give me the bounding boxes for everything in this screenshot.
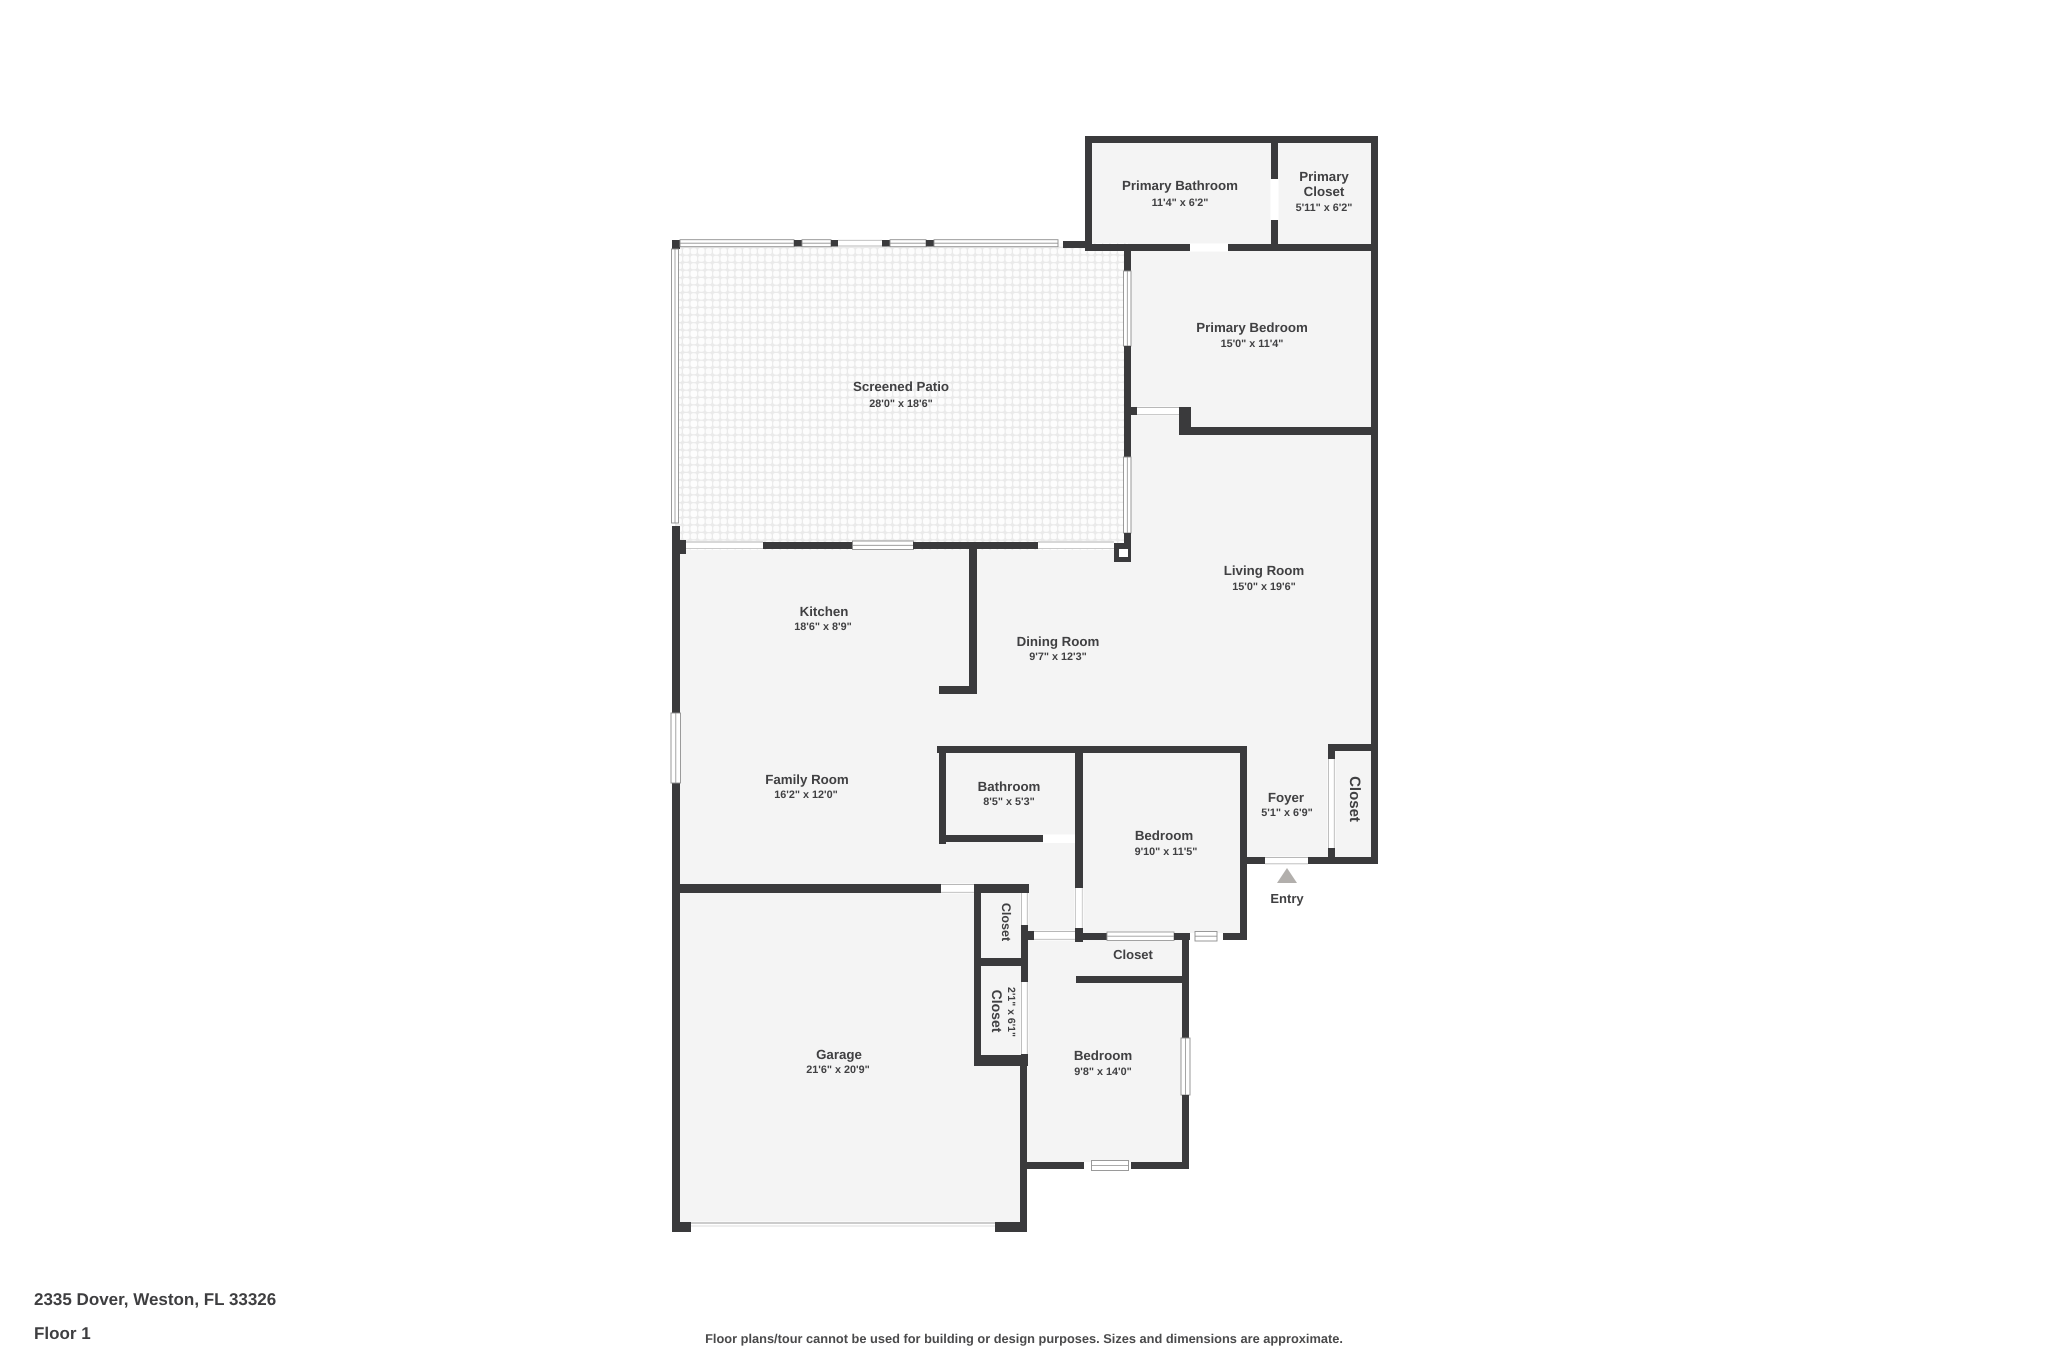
- svg-text:Floor 1: Floor 1: [34, 1324, 91, 1343]
- svg-text:Foyer: Foyer: [1268, 790, 1304, 805]
- svg-text:28'0" x 18'6": 28'0" x 18'6": [869, 398, 932, 410]
- svg-text:5'1" x 6'9": 5'1" x 6'9": [1261, 807, 1312, 819]
- svg-text:18'6" x 8'9": 18'6" x 8'9": [794, 621, 851, 633]
- svg-text:Primary: Primary: [1299, 169, 1349, 184]
- svg-text:Floor plans/tour cannot be use: Floor plans/tour cannot be used for buil…: [705, 1331, 1343, 1346]
- svg-text:Entry: Entry: [1270, 891, 1304, 906]
- svg-text:5'11" x 6'2": 5'11" x 6'2": [1296, 202, 1353, 214]
- svg-text:15'0" x 11'4": 15'0" x 11'4": [1221, 338, 1284, 350]
- svg-text:Closet: Closet: [999, 903, 1013, 942]
- svg-text:16'2" x 12'0": 16'2" x 12'0": [774, 789, 837, 801]
- svg-text:9'8" x 14'0": 9'8" x 14'0": [1074, 1066, 1131, 1078]
- svg-text:8'5" x 5'3": 8'5" x 5'3": [983, 796, 1034, 808]
- svg-text:Dining Room: Dining Room: [1017, 634, 1100, 649]
- svg-text:2'1" x 6'1": 2'1" x 6'1": [1005, 987, 1017, 1037]
- svg-text:Living Room: Living Room: [1224, 563, 1305, 578]
- svg-text:15'0" x 19'6": 15'0" x 19'6": [1232, 581, 1295, 593]
- svg-text:Kitchen: Kitchen: [800, 604, 849, 619]
- svg-text:Primary Bathroom: Primary Bathroom: [1122, 178, 1238, 193]
- svg-text:9'10" x 11'5": 9'10" x 11'5": [1135, 846, 1198, 858]
- svg-text:Garage: Garage: [816, 1047, 862, 1062]
- svg-text:Primary Bedroom: Primary Bedroom: [1196, 320, 1308, 335]
- svg-text:Screened Patio: Screened Patio: [853, 379, 949, 394]
- svg-text:Closet: Closet: [1304, 184, 1345, 199]
- svg-text:Bathroom: Bathroom: [978, 779, 1041, 794]
- svg-text:Family Room: Family Room: [765, 772, 849, 787]
- svg-text:Bedroom: Bedroom: [1135, 828, 1193, 843]
- svg-text:Closet: Closet: [989, 990, 1005, 1033]
- svg-text:Closet: Closet: [1113, 947, 1153, 962]
- svg-text:Closet: Closet: [1346, 776, 1363, 822]
- svg-text:21'6" x 20'9": 21'6" x 20'9": [806, 1064, 869, 1076]
- svg-text:11'4" x 6'2": 11'4" x 6'2": [1152, 197, 1209, 209]
- svg-text:Bedroom: Bedroom: [1074, 1048, 1132, 1063]
- svg-text:9'7" x 12'3": 9'7" x 12'3": [1029, 651, 1086, 663]
- svg-text:2335 Dover, Weston, FL 33326: 2335 Dover, Weston, FL 33326: [34, 1290, 276, 1309]
